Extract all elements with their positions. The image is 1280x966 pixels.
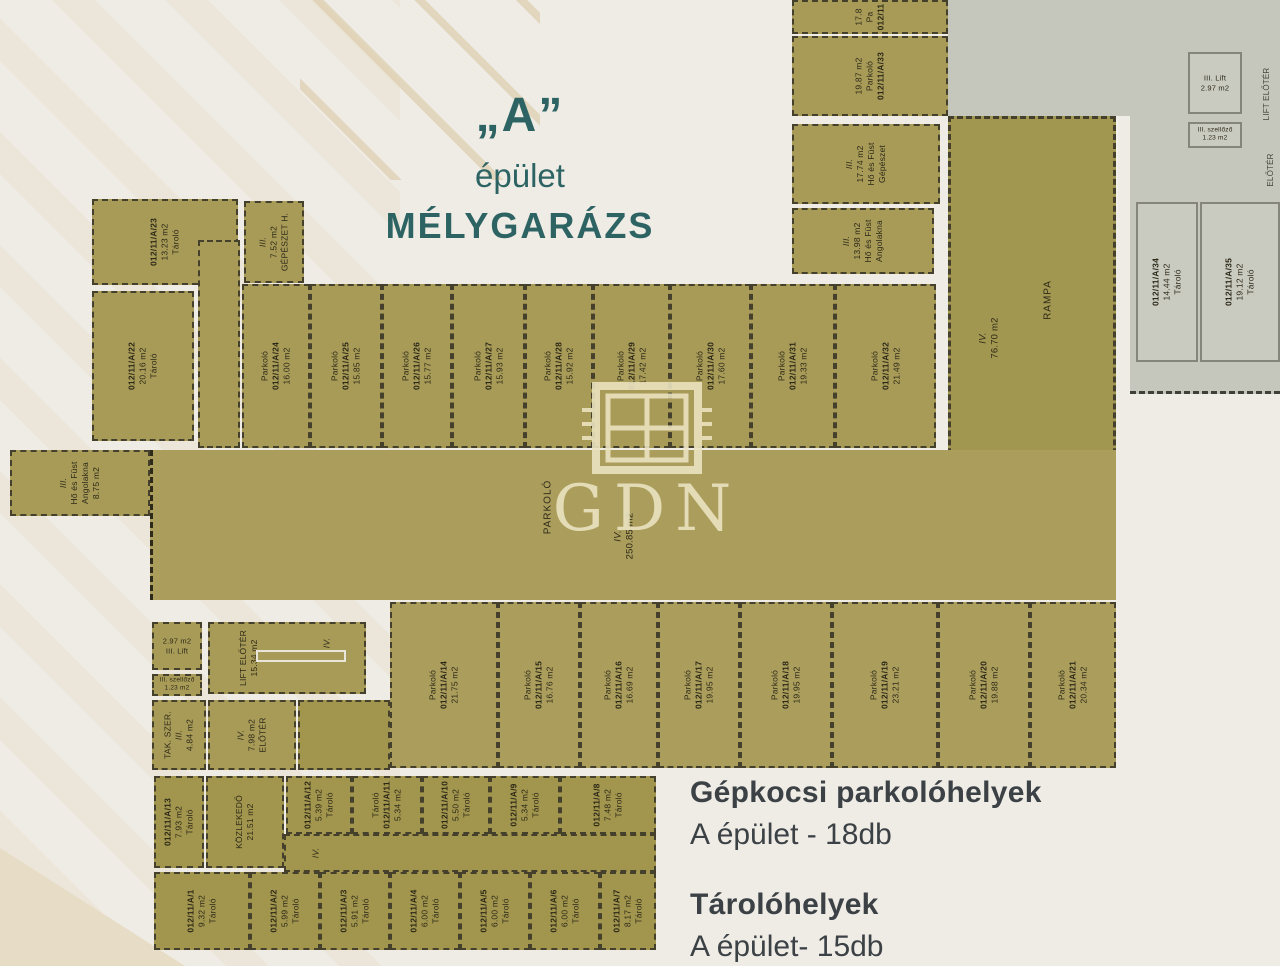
room-label: Parkoló012/11/A/2019.88 m2: [967, 661, 1000, 709]
room-label: III. szellőző1.23 m2: [159, 677, 194, 694]
room-a14: Parkoló012/11/A/1421.75 m2: [390, 602, 498, 768]
room-label: RAMPA: [1042, 280, 1055, 320]
room-label: Parkoló012/11/A/2416.00 m2: [259, 342, 292, 390]
room-label: 2.97 m2III. Lift: [163, 636, 192, 656]
room-label: 012/11/A/3414.44 m2Tároló: [1150, 258, 1183, 306]
room-a6: 012/11/A/66.00 m2Tároló: [530, 872, 600, 950]
summary-block: Gépkocsi parkolóhelyek A épület - 18db T…: [690, 776, 1042, 964]
room-label: Parkoló012/11/A/1421.75 m2: [427, 661, 460, 709]
room-label: 012/11/A/78.17 m2Tároló: [611, 889, 644, 932]
room-label: III. szellőző1.23 m2: [1197, 127, 1232, 144]
room-a2: 012/11/A/25.99 m2Tároló: [250, 872, 320, 950]
room-label: Parkoló012/11/A/3119.33 m2: [776, 342, 809, 390]
room-label: 012/11/A/46.00 m2Tároló: [408, 889, 441, 932]
room-label: 17.8Pa012/11: [853, 4, 886, 31]
room-a7: 012/11/A/78.17 m2Tároló: [600, 872, 656, 950]
room-label: III.Hő és FüstAngolakna8.75 m2: [58, 461, 102, 504]
parking-heading: Gépkocsi parkolóhelyek: [690, 776, 1042, 810]
room-a18: Parkoló012/11/A/1819.95 m2: [740, 602, 832, 768]
room-a21: Parkoló012/11/A/2120.34 m2: [1030, 602, 1116, 768]
room-a20: Parkoló012/11/A/2019.88 m2: [938, 602, 1030, 768]
room-a22: 012/11/A/2220.16 m2Tároló: [92, 291, 194, 441]
room-a17: Parkoló012/11/A/1719.95 m2: [658, 602, 740, 768]
storage-count: A épület- 15db: [690, 930, 1042, 964]
room-hfA2: III.13.98 m2Hő és FüstAngolakna: [792, 208, 934, 274]
room-cIV: IV.: [284, 834, 656, 872]
room-elo: IV.7.98 m2ELŐTÉR: [208, 700, 296, 770]
window-icon: [582, 380, 712, 476]
room-a8: 012/11/A/87.48 m2Tároló: [560, 776, 656, 834]
room-label: KÖZLEKEDŐ21.51 m2: [234, 795, 256, 849]
room-label: 19.87 m2Parkoló012/11/A/33: [853, 52, 886, 100]
room-label: Parkoló012/11/A/1819.95 m2: [769, 661, 802, 709]
room-a9: 012/11/A/95.34 m2Tároló: [490, 776, 560, 834]
room-label: 012/11/A/66.00 m2Tároló: [548, 889, 581, 932]
room-a34: 012/11/A/3414.44 m2Tároló: [1136, 202, 1198, 362]
room-koz: KÖZLEKEDŐ21.51 m2: [206, 776, 284, 868]
room-pTop: 17.8Pa012/11: [792, 0, 948, 34]
room-label: 012/11/A/2313.23 m2Tároló: [148, 218, 181, 266]
room-a10: 012/11/A/105.50 m2Tároló: [422, 776, 490, 834]
room-corS: [298, 700, 390, 770]
storage-heading: Tárolóhelyek: [690, 888, 1042, 922]
room-gLift: III. Lift2.97 m2: [1188, 52, 1242, 114]
room-gepH: III.7.52 m2GÉPÉSZET H.: [244, 201, 304, 283]
room-hfA1: III.Hő és FüstAngolakna8.75 m2: [10, 450, 150, 516]
room-a27: Parkoló012/11/A/2715.93 m2: [452, 284, 525, 448]
room-label: Parkoló012/11/A/2515.85 m2: [329, 342, 362, 390]
floorplan-photo: 012/11/A/2313.23 m2TárolóIII.7.52 m2GÉPÉ…: [0, 0, 1280, 966]
room-hfG: III.17.74 m2Hő és FüstGépészet: [792, 124, 940, 204]
room-label: III.17.74 m2Hő és FüstGépészet: [844, 142, 888, 185]
room-a1: 012/11/A/19.32 m2Tároló: [154, 872, 250, 950]
room-label: Parkoló012/11/A/3221.49 m2: [869, 342, 902, 390]
room-label: IV.: [310, 848, 321, 858]
room-gElo: ELŐTÉR: [1262, 138, 1280, 202]
room-label: LIFT ELŐTÉR: [1262, 68, 1272, 121]
room-szel: III. szellőző1.23 m2: [152, 674, 202, 696]
room-label: 012/11/A/19.32 m2Tároló: [185, 889, 218, 932]
room-a26: Parkoló012/11/A/2615.77 m2: [382, 284, 452, 448]
room-label: IV.76.70 m2: [978, 317, 1003, 358]
room-label: 012/11/A/3519.12 m2Tároló: [1223, 258, 1256, 306]
room-label: IV.7.98 m2ELŐTÉR: [235, 717, 268, 752]
room-liftE: LIFT ELŐTÉR15.34 m2IV.: [208, 622, 366, 694]
room-a15: Parkoló012/11/A/1516.76 m2: [498, 602, 580, 768]
plan-subtitle: MÉLYGARÁZS: [330, 205, 710, 247]
room-gLiftE: LIFT ELŐTÉR: [1254, 44, 1280, 144]
room-label: Parkoló012/11/A/1516.76 m2: [522, 661, 555, 709]
room-a16: Parkoló012/11/A/1616.69 m2: [580, 602, 658, 768]
room-label: Parkoló012/11/A/1923.21 m2: [868, 661, 901, 709]
parking-count: A épület - 18db: [690, 818, 1042, 852]
room-a32: Parkoló012/11/A/3221.49 m2: [835, 284, 936, 448]
plan-title: „A” épület MÉLYGARÁZS: [330, 88, 710, 247]
room-label: 012/11/A/35.91 m2Tároló: [338, 889, 371, 932]
room-label: Parkoló012/11/A/2120.34 m2: [1056, 661, 1089, 709]
room-a33: 19.87 m2Parkoló012/11/A/33: [792, 36, 948, 116]
room-label: Parkoló012/11/A/1719.95 m2: [682, 661, 715, 709]
room-a19: Parkoló012/11/A/1923.21 m2: [832, 602, 938, 768]
room-a12: 012/11/A/125.39 m2Tároló: [286, 776, 352, 834]
room-label: III.7.52 m2GÉPÉSZET H.: [257, 213, 290, 271]
room-label: TAK. SZER.III.4.84 m2: [162, 711, 195, 759]
room-label: 012/11/A/25.99 m2Tároló: [268, 889, 301, 932]
room-label: Tároló012/11/A/115.34 m2: [370, 781, 403, 829]
room-tak: TAK. SZER.III.4.84 m2: [152, 700, 206, 770]
room-label: 012/11/A/87.48 m2Tároló: [591, 783, 624, 826]
room-label: Parkoló012/11/A/2715.93 m2: [472, 342, 505, 390]
room-a25: Parkoló012/11/A/2515.85 m2: [310, 284, 382, 448]
room-label: 012/11/A/137.93 m2Tároló: [162, 798, 195, 846]
room-a5: 012/11/A/56.00 m2Tároló: [460, 872, 530, 950]
room-label: 012/11/A/125.39 m2Tároló: [302, 781, 335, 829]
room-label: 012/11/A/105.50 m2Tároló: [439, 781, 472, 829]
room-label: III. Lift2.97 m2: [1201, 73, 1230, 93]
watermark-text: GDN: [540, 476, 754, 543]
room-a4: 012/11/A/46.00 m2Tároló: [390, 872, 460, 950]
room-a13: 012/11/A/137.93 m2Tároló: [154, 776, 204, 868]
room-a11: Tároló012/11/A/115.34 m2: [352, 776, 422, 834]
room-label: IV.: [322, 638, 333, 648]
room-label: Parkoló012/11/A/1616.69 m2: [602, 661, 635, 709]
room-a3: 012/11/A/35.91 m2Tároló: [320, 872, 390, 950]
room-a24: Parkoló012/11/A/2416.00 m2: [242, 284, 310, 448]
room-gSzel: III. szellőző1.23 m2: [1188, 122, 1242, 148]
room-label: 012/11/A/56.00 m2Tároló: [478, 889, 511, 932]
room-label: 012/11/A/95.34 m2Tároló: [508, 783, 541, 826]
room-a31: Parkoló012/11/A/3119.33 m2: [751, 284, 835, 448]
room-lift: 2.97 m2III. Lift: [152, 622, 202, 670]
room-label: ELŐTÉR: [1266, 153, 1276, 186]
building-letter: „A”: [330, 88, 710, 143]
building-word: épület: [330, 157, 710, 195]
ramp-strip: [256, 650, 345, 662]
room-corL: [198, 240, 240, 448]
room-a35: 012/11/A/3519.12 m2Tároló: [1200, 202, 1280, 362]
room-label: 012/11/A/2220.16 m2Tároló: [126, 342, 159, 390]
gdn-watermark: GDN: [540, 380, 754, 543]
room-label: III.13.98 m2Hő és FüstAngolakna: [841, 219, 885, 262]
room-label: Parkoló012/11/A/2615.77 m2: [400, 342, 433, 390]
